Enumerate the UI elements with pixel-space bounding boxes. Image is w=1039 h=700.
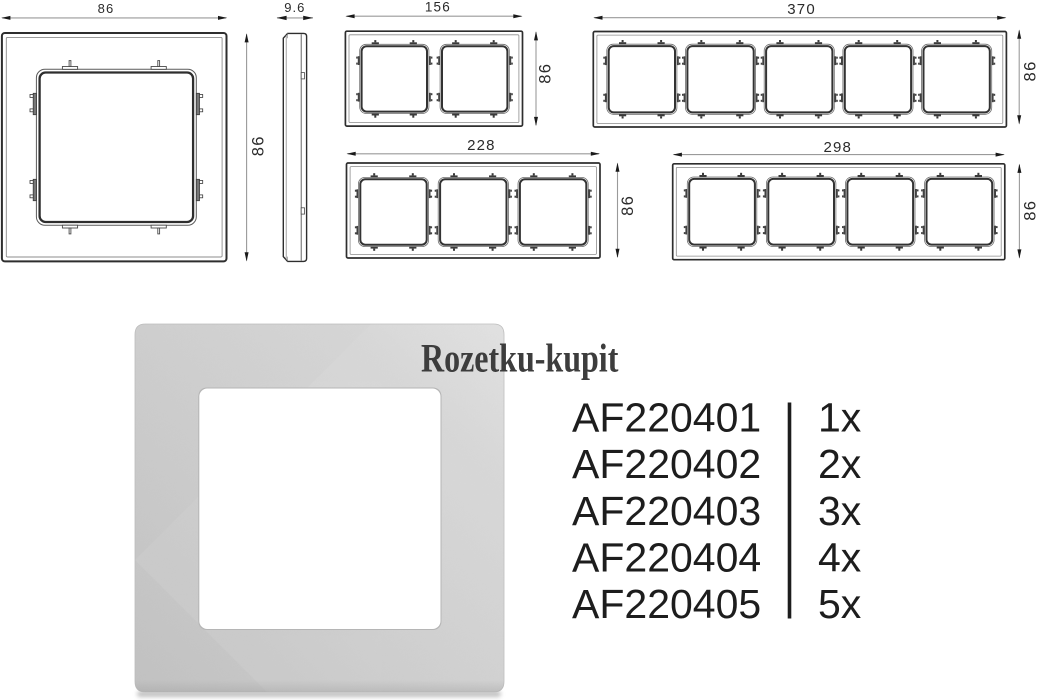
svg-text:156: 156: [425, 0, 451, 15]
svg-text:86: 86: [1021, 200, 1039, 221]
svg-text:1x: 1x: [818, 395, 862, 441]
svg-text:86: 86: [98, 1, 115, 16]
svg-text:86: 86: [536, 63, 554, 84]
svg-text:3x: 3x: [818, 488, 862, 534]
svg-text:AF220405: AF220405: [572, 581, 761, 627]
svg-text:Rozetku-kupit: Rozetku-kupit: [421, 336, 618, 380]
svg-text:AF220402: AF220402: [572, 441, 761, 487]
svg-text:AF220403: AF220403: [572, 488, 761, 534]
svg-text:228: 228: [467, 137, 496, 154]
svg-text:AF220404: AF220404: [572, 534, 761, 580]
svg-text:2x: 2x: [818, 441, 862, 487]
svg-text:86: 86: [250, 135, 268, 156]
svg-text:AF220401: AF220401: [572, 395, 761, 441]
svg-text:86: 86: [1021, 60, 1039, 81]
svg-text:9.6: 9.6: [284, 0, 305, 15]
svg-text:5x: 5x: [818, 581, 862, 627]
svg-text:298: 298: [823, 139, 852, 156]
svg-text:86: 86: [619, 195, 637, 216]
svg-text:370: 370: [787, 1, 816, 18]
svg-text:4x: 4x: [818, 534, 862, 580]
